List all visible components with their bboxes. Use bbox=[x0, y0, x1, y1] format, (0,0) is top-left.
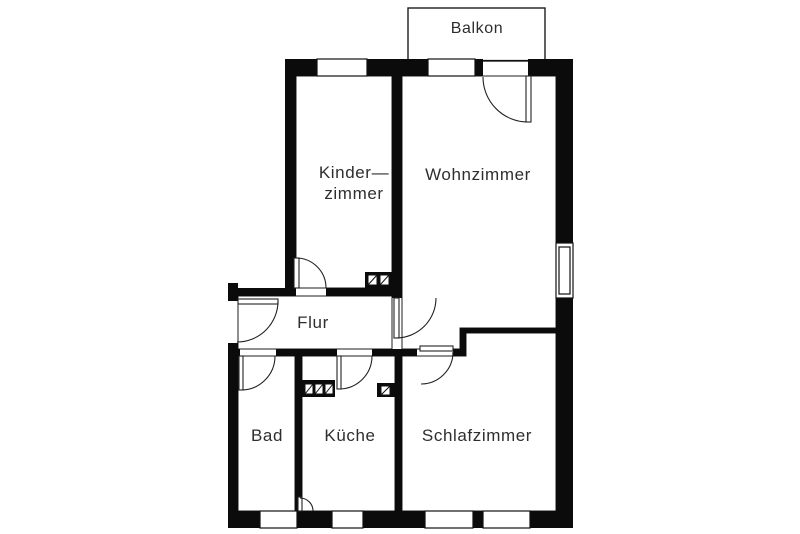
door-leaf bbox=[238, 299, 278, 304]
label-bad: Bad bbox=[251, 426, 283, 445]
window-wohnzimmer-right-frame bbox=[559, 247, 570, 294]
sash-leaf bbox=[298, 497, 302, 511]
wall-bottom-pier bbox=[473, 511, 483, 528]
window-schlafzimmer-1 bbox=[425, 511, 473, 528]
door-leaf bbox=[394, 298, 399, 338]
wall-flur-bottom-3 bbox=[372, 349, 417, 356]
window-kinderzimmer bbox=[317, 59, 367, 76]
wall-bad-kueche bbox=[295, 356, 302, 511]
wall-flur-top-1 bbox=[228, 288, 296, 296]
label-kinderzimmer-line1: Kinder— bbox=[319, 163, 389, 182]
shaft-vents-kueche-left bbox=[305, 384, 333, 394]
label-wohnzimmer: Wohnzimmer bbox=[425, 165, 531, 184]
wall-flur-bottom-2 bbox=[276, 349, 337, 356]
window-bad bbox=[260, 511, 297, 528]
label-kueche: Küche bbox=[324, 426, 375, 445]
shaft-vents-kueche-right bbox=[381, 386, 390, 395]
door-leaf bbox=[420, 346, 453, 351]
floor-plan-page: Balkon Kinder— zimmer Wohnzimmer Flur Ba… bbox=[0, 0, 800, 534]
wall-kinder-wohn bbox=[392, 76, 402, 298]
wall-bottom-4 bbox=[530, 511, 573, 528]
door-leaf bbox=[526, 76, 531, 122]
window-wohnzimmer-top bbox=[428, 59, 475, 76]
wall-flur-bottom-1 bbox=[228, 349, 240, 356]
window-kueche bbox=[332, 511, 363, 528]
label-balkon: Balkon bbox=[451, 20, 504, 37]
wall-right-2 bbox=[556, 298, 573, 528]
wall-right-1 bbox=[556, 59, 573, 243]
wall-top-3 bbox=[475, 59, 483, 76]
wall-bottom-3 bbox=[363, 511, 425, 528]
door-leaf bbox=[239, 356, 243, 390]
wall-top-2 bbox=[367, 59, 428, 76]
label-flur: Flur bbox=[297, 313, 329, 332]
wall-step bbox=[460, 328, 466, 356]
window-schlafzimmer-2 bbox=[483, 511, 530, 528]
wall-kueche-schlaf bbox=[395, 356, 402, 511]
label-schlafzimmer: Schlafzimmer bbox=[422, 426, 532, 445]
floor-plan-svg: Balkon Kinder— zimmer Wohnzimmer Flur Ba… bbox=[0, 0, 800, 534]
wall-west-lower-2 bbox=[228, 343, 238, 528]
label-kinderzimmer-line2: zimmer bbox=[324, 184, 383, 203]
door-leaf bbox=[337, 356, 341, 389]
door-leaf bbox=[294, 258, 299, 288]
wall-wohn-schlaf bbox=[466, 328, 556, 333]
wall-flur-top-2 bbox=[326, 288, 402, 296]
wall-bottom-2 bbox=[297, 511, 332, 528]
